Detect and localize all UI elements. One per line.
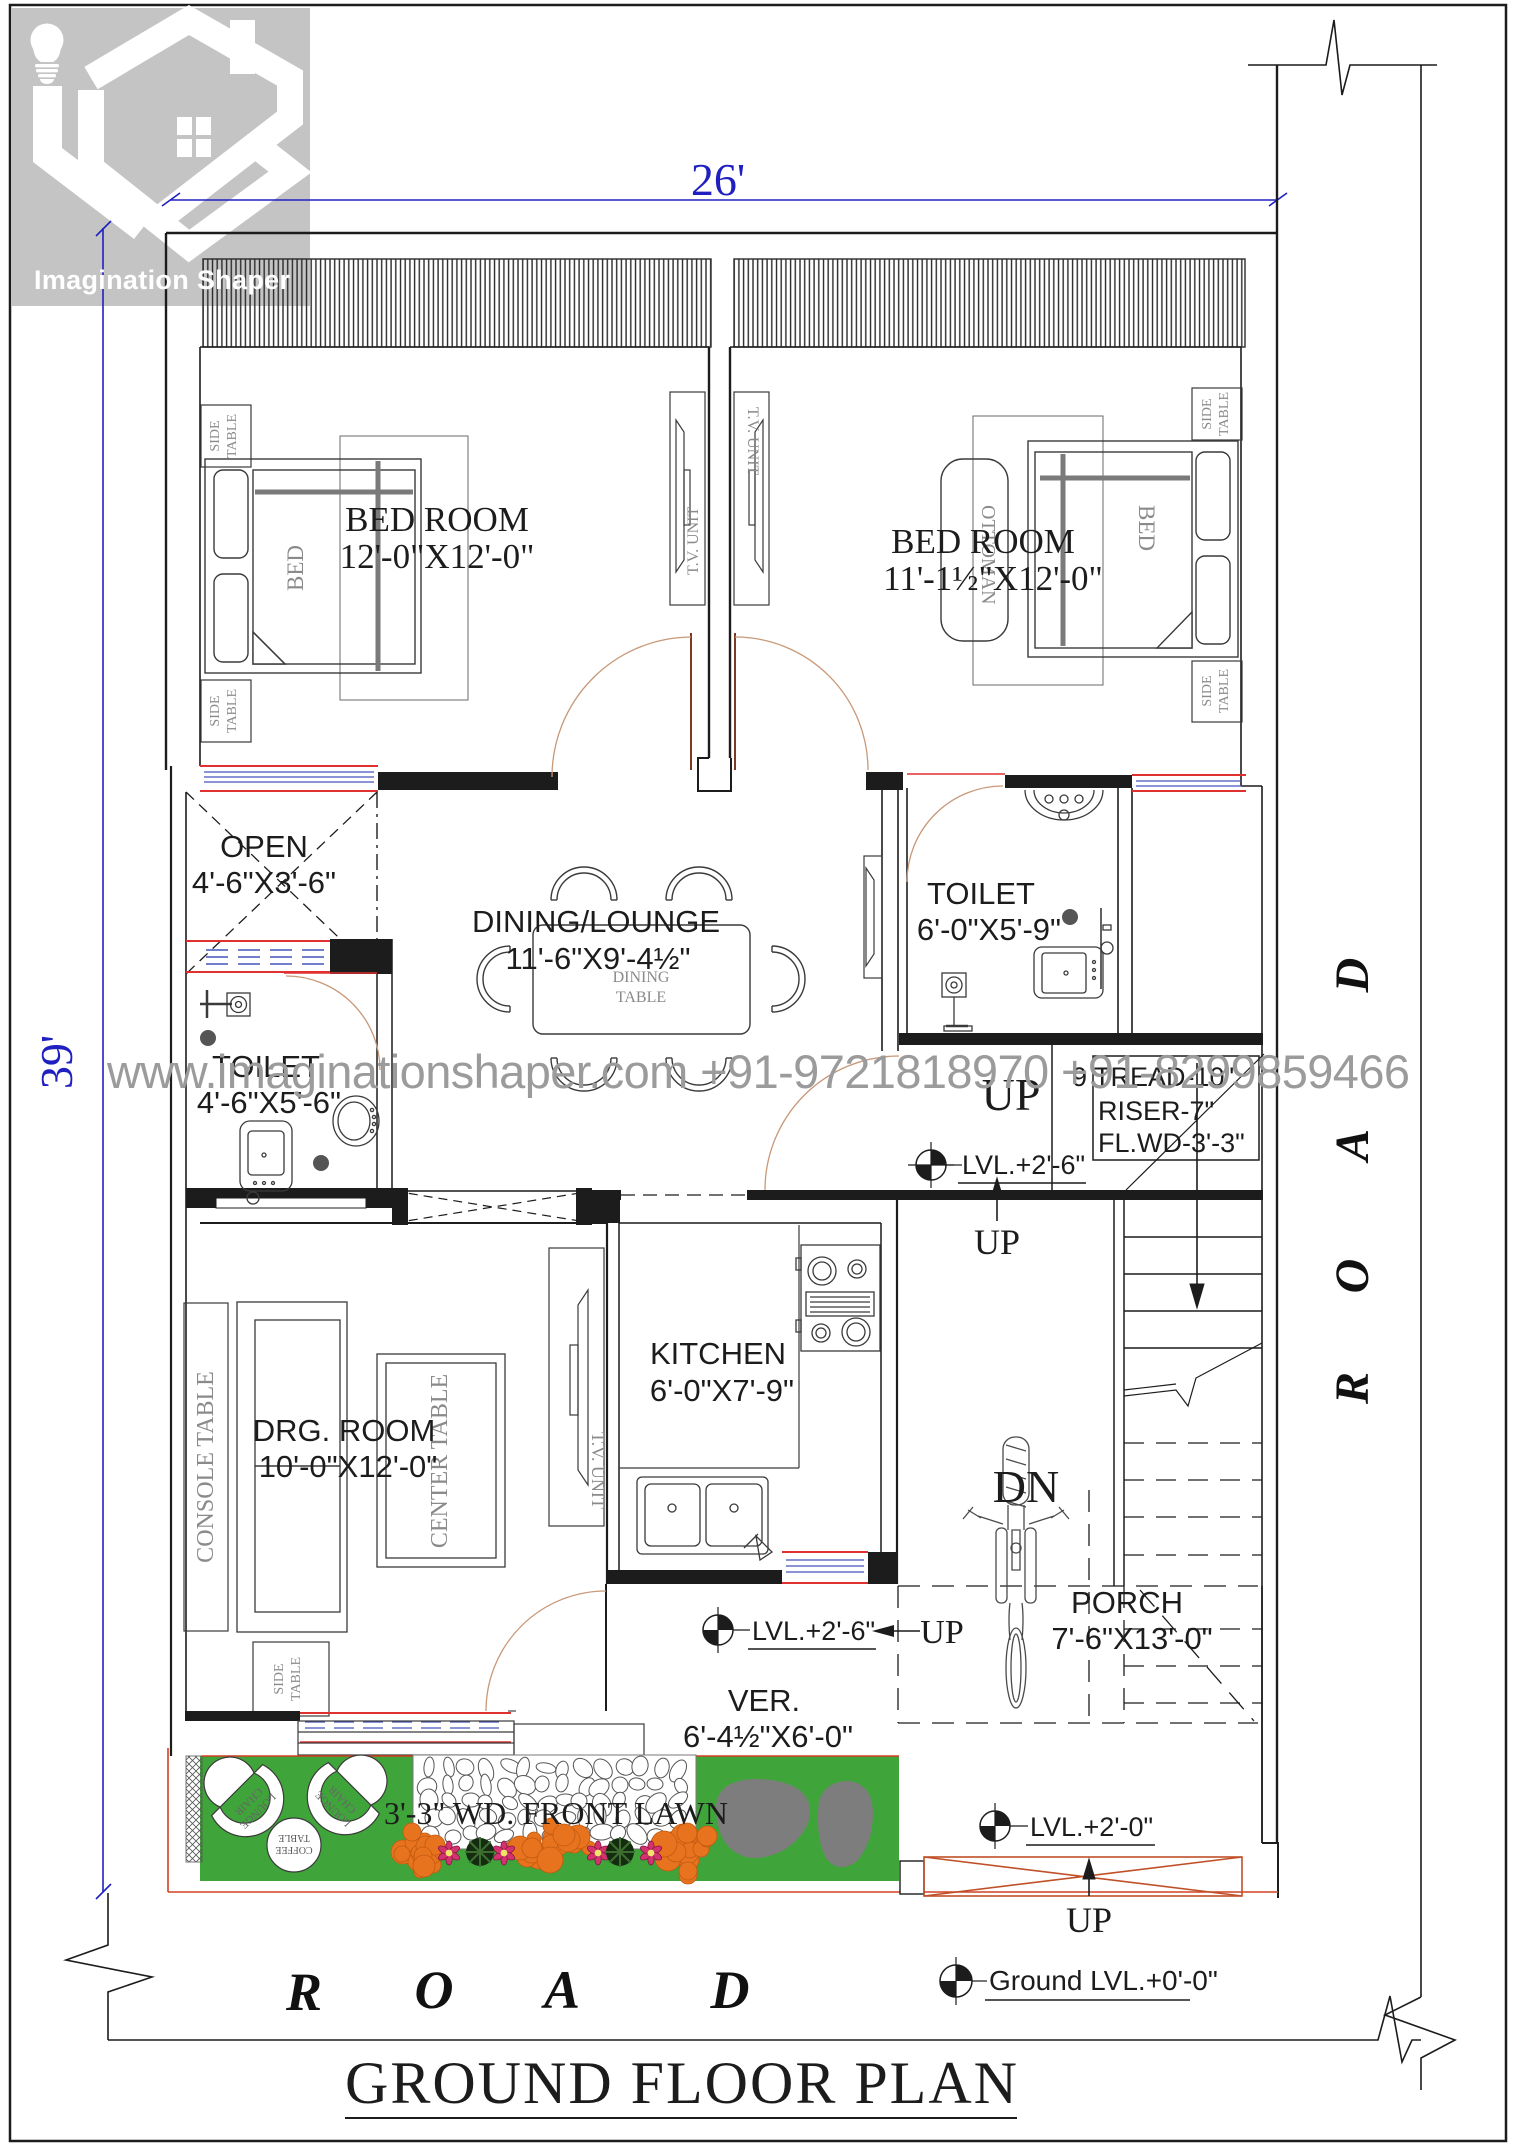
svg-text:T.V. UNIT: T.V. UNIT <box>685 506 702 575</box>
svg-text:TABLE: TABLE <box>225 689 240 733</box>
svg-text:UP: UP <box>1066 1900 1112 1940</box>
svg-text:LVL.+2'-6": LVL.+2'-6" <box>962 1150 1085 1180</box>
svg-text:T.V. UNIT: T.V. UNIT <box>744 407 761 476</box>
svg-text:UP: UP <box>974 1222 1020 1262</box>
svg-text:SIDE: SIDE <box>208 695 223 726</box>
svg-text:BED: BED <box>1134 505 1159 551</box>
svg-text:Ground LVL.+0'-0": Ground LVL.+0'-0" <box>989 1965 1218 1996</box>
svg-text:TABLE: TABLE <box>616 989 666 1006</box>
svg-text:COFFEE: COFFEE <box>275 1844 312 1855</box>
svg-text:KITCHEN: KITCHEN <box>650 1336 786 1371</box>
svg-text:OPEN: OPEN <box>220 829 308 864</box>
svg-text:TOILET: TOILET <box>927 876 1035 911</box>
svg-text:D: D <box>710 1960 750 2020</box>
svg-text:12'-0"X12'-0": 12'-0"X12'-0" <box>340 537 535 576</box>
svg-text:DINING/LOUNGE: DINING/LOUNGE <box>472 904 720 939</box>
svg-text:www.imaginationshaper.com +91-: www.imaginationshaper.com +91-9721818970… <box>106 1045 1410 1098</box>
svg-text:D: D <box>1326 958 1379 994</box>
svg-text:BED ROOM: BED ROOM <box>891 522 1075 561</box>
svg-text:39': 39' <box>31 1035 82 1089</box>
svg-text:R: R <box>1326 1372 1379 1405</box>
svg-text:TABLE: TABLE <box>289 1657 304 1701</box>
svg-text:26': 26' <box>691 154 745 205</box>
svg-text:3'-3" WD. FRONT LAWN: 3'-3" WD. FRONT LAWN <box>384 1795 728 1831</box>
svg-text:SIDE: SIDE <box>1200 398 1215 429</box>
svg-text:UP: UP <box>920 1614 963 1651</box>
svg-text:O: O <box>415 1960 454 2020</box>
svg-text:TABLE: TABLE <box>225 414 240 458</box>
svg-text:GROUND FLOOR PLAN: GROUND FLOOR PLAN <box>345 2050 1017 2116</box>
svg-text:Imagination Shaper: Imagination Shaper <box>34 265 290 295</box>
svg-text:4'-6"X3'-6": 4'-6"X3'-6" <box>192 865 336 900</box>
svg-text:6'-0"X7'-9": 6'-0"X7'-9" <box>650 1373 794 1408</box>
svg-text:DN: DN <box>993 1461 1059 1512</box>
svg-text:T.V. UNIT: T.V. UNIT <box>588 1432 608 1509</box>
svg-text:VER.: VER. <box>728 1683 800 1718</box>
svg-text:R: R <box>285 1962 322 2022</box>
svg-text:TABLE: TABLE <box>1217 392 1232 436</box>
svg-text:BED ROOM: BED ROOM <box>345 500 529 539</box>
svg-text:SIDE: SIDE <box>272 1663 287 1694</box>
svg-text:7'-6"X13'-0": 7'-6"X13'-0" <box>1051 1621 1212 1656</box>
svg-text:A: A <box>541 1960 580 2020</box>
svg-text:FL.WD-3'-3": FL.WD-3'-3" <box>1098 1128 1245 1158</box>
svg-text:O: O <box>1326 1259 1379 1294</box>
svg-text:BED: BED <box>283 545 308 591</box>
svg-text:TABLE: TABLE <box>1217 669 1232 713</box>
svg-text:DRG. ROOM: DRG. ROOM <box>253 1413 436 1448</box>
svg-text:SIDE: SIDE <box>1200 675 1215 706</box>
svg-text:6'-4½"X6'-0": 6'-4½"X6'-0" <box>683 1719 853 1754</box>
svg-text:CONSOLE TABLE: CONSOLE TABLE <box>193 1371 219 1563</box>
svg-text:A: A <box>1326 1129 1379 1164</box>
svg-text:11'-6"X9'-4½": 11'-6"X9'-4½" <box>506 941 691 976</box>
svg-text:PORCH: PORCH <box>1071 1585 1183 1620</box>
svg-text:6'-0"X5'-9": 6'-0"X5'-9" <box>917 912 1061 947</box>
svg-text:TABLE: TABLE <box>278 1832 309 1843</box>
svg-text:11'-1½"X12'-0": 11'-1½"X12'-0" <box>883 559 1103 598</box>
svg-text:LVL.+2'-6": LVL.+2'-6" <box>752 1616 875 1646</box>
svg-text:SIDE: SIDE <box>208 420 223 451</box>
svg-text:10'-0"X12'-0": 10'-0"X12'-0" <box>259 1449 438 1484</box>
svg-text:LVL.+2'-0": LVL.+2'-0" <box>1030 1812 1153 1842</box>
